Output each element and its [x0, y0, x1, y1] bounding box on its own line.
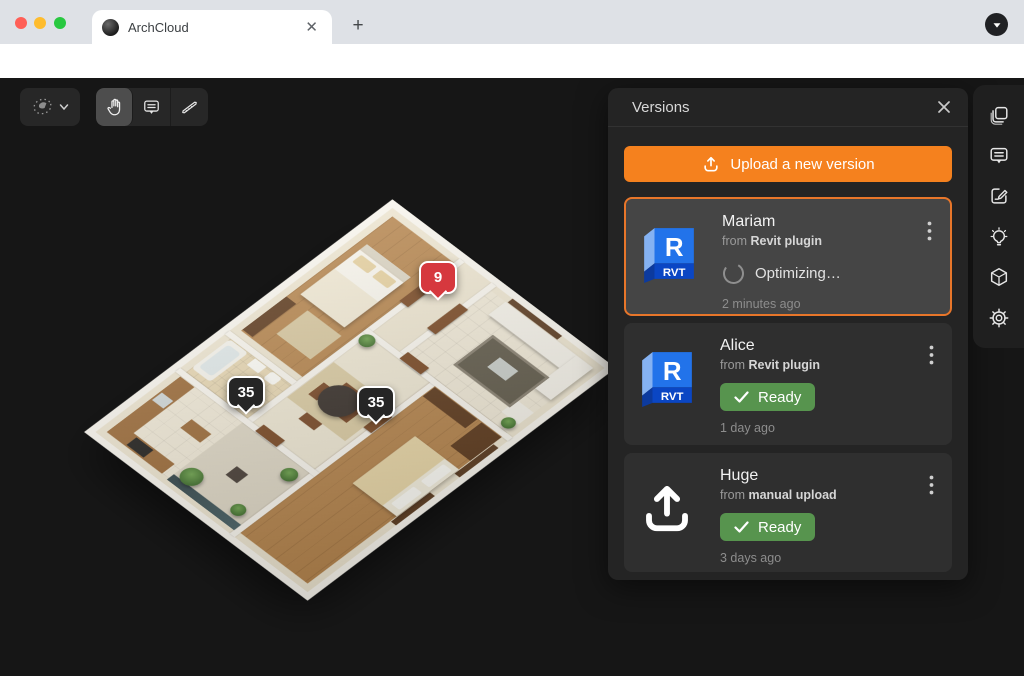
browser-tab[interactable]: ArchCloud ✕	[92, 10, 332, 44]
tab-close-icon[interactable]: ✕	[301, 16, 322, 38]
version-status: Optimizing…	[722, 259, 918, 287]
settings-rail-button[interactable]	[987, 306, 1011, 330]
version-name: Alice	[720, 337, 920, 355]
window-zoom-button[interactable]	[54, 17, 66, 29]
check-icon	[734, 391, 749, 403]
measure-marker[interactable]: 35	[357, 386, 395, 418]
archcloud-favicon	[102, 19, 119, 36]
window-minimize-button[interactable]	[34, 17, 46, 29]
kebab-icon	[929, 345, 934, 365]
versions-panel: Versions Upload a new version R	[608, 88, 968, 580]
measure-marker[interactable]: 35	[227, 376, 265, 408]
comments-icon	[988, 145, 1010, 167]
model-rail-button[interactable]	[987, 265, 1011, 289]
svg-text:RVT: RVT	[663, 267, 686, 279]
comments-rail-button[interactable]	[987, 144, 1011, 168]
window-close-button[interactable]	[15, 17, 27, 29]
version-menu-button[interactable]	[918, 211, 940, 302]
revit-file-icon: R RVT	[638, 349, 696, 407]
version-source: from manual upload	[720, 488, 920, 502]
version-source: from Revit plugin	[720, 358, 920, 372]
marker-label: 9	[434, 269, 442, 286]
close-icon	[936, 99, 952, 115]
manual-upload-file-icon	[638, 479, 696, 537]
model-icon	[988, 266, 1010, 288]
settings-icon	[988, 307, 1010, 329]
version-menu-button[interactable]	[920, 465, 942, 560]
lasso-select-icon	[31, 95, 55, 119]
comment-tool-icon	[142, 98, 161, 117]
svg-text:R: R	[665, 234, 684, 262]
measure-tool-button[interactable]	[171, 88, 208, 126]
markup-icon	[988, 185, 1010, 207]
kebab-icon	[929, 475, 934, 495]
versions-panel-header: Versions	[608, 88, 968, 127]
hand-tool-button[interactable]	[96, 88, 133, 126]
chevron-down-icon	[59, 102, 69, 112]
version-card-huge[interactable]: Huge from manual upload Ready 3 days ago	[624, 453, 952, 572]
new-tab-button[interactable]: +	[346, 14, 370, 38]
hand-tool-icon	[105, 98, 124, 117]
panel-title: Versions	[632, 99, 936, 116]
tab-title: ArchCloud	[128, 20, 301, 35]
ready-badge: Ready	[720, 383, 815, 411]
version-name: Mariam	[722, 213, 918, 231]
comment-tool-button[interactable]	[133, 88, 170, 126]
version-name: Huge	[720, 467, 920, 485]
version-card-mariam[interactable]: R RVT Mariam from Revit plugin Optimizin…	[624, 197, 952, 316]
svg-text:R: R	[663, 358, 682, 386]
revit-file-icon: R RVT	[640, 225, 698, 283]
version-time: 1 day ago	[720, 421, 920, 435]
version-status: Ready	[720, 513, 920, 541]
upload-button-label: Upload a new version	[730, 156, 874, 173]
svg-text:RVT: RVT	[661, 391, 684, 403]
caret-down-icon	[992, 20, 1002, 30]
upload-new-version-button[interactable]: Upload a new version	[624, 146, 952, 182]
measure-tool-icon	[180, 98, 199, 117]
comment-marker[interactable]: 9	[419, 261, 457, 294]
ideas-icon	[988, 226, 1010, 248]
version-status: Ready	[720, 383, 920, 411]
viewer-canvas[interactable]: 9 35 35 Versions Upload a new version	[0, 78, 1024, 676]
tab-search-button[interactable]	[985, 13, 1008, 36]
select-tool-dropdown[interactable]	[20, 88, 80, 126]
version-time: 3 days ago	[720, 551, 920, 565]
version-menu-button[interactable]	[920, 335, 942, 433]
floorplan	[95, 208, 604, 592]
browser-tab-strip: ArchCloud ✕ +	[0, 0, 1024, 44]
upload-icon	[701, 154, 721, 174]
marker-label: 35	[368, 394, 385, 411]
kebab-icon	[927, 221, 932, 241]
tool-group	[96, 88, 208, 126]
marker-label: 35	[238, 384, 255, 401]
browser-toolbar: archcloud.app/projects/bGkkIWjtNXhf4zsEg…	[0, 44, 1024, 78]
version-time: 2 minutes ago	[722, 297, 918, 311]
markup-rail-button[interactable]	[987, 184, 1011, 208]
floorplan-model[interactable]	[90, 185, 610, 625]
check-icon	[734, 521, 749, 533]
spinner-icon	[722, 262, 745, 285]
copies-icon	[988, 104, 1010, 126]
ready-badge: Ready	[720, 513, 815, 541]
panel-close-button[interactable]	[936, 99, 952, 115]
right-sidebar	[973, 85, 1024, 348]
version-card-alice[interactable]: R RVT Alice from Revit plugin Ready 1 da…	[624, 323, 952, 445]
version-source: from Revit plugin	[722, 234, 918, 248]
ideas-rail-button[interactable]	[987, 225, 1011, 249]
versions-rail-button[interactable]	[987, 103, 1011, 127]
